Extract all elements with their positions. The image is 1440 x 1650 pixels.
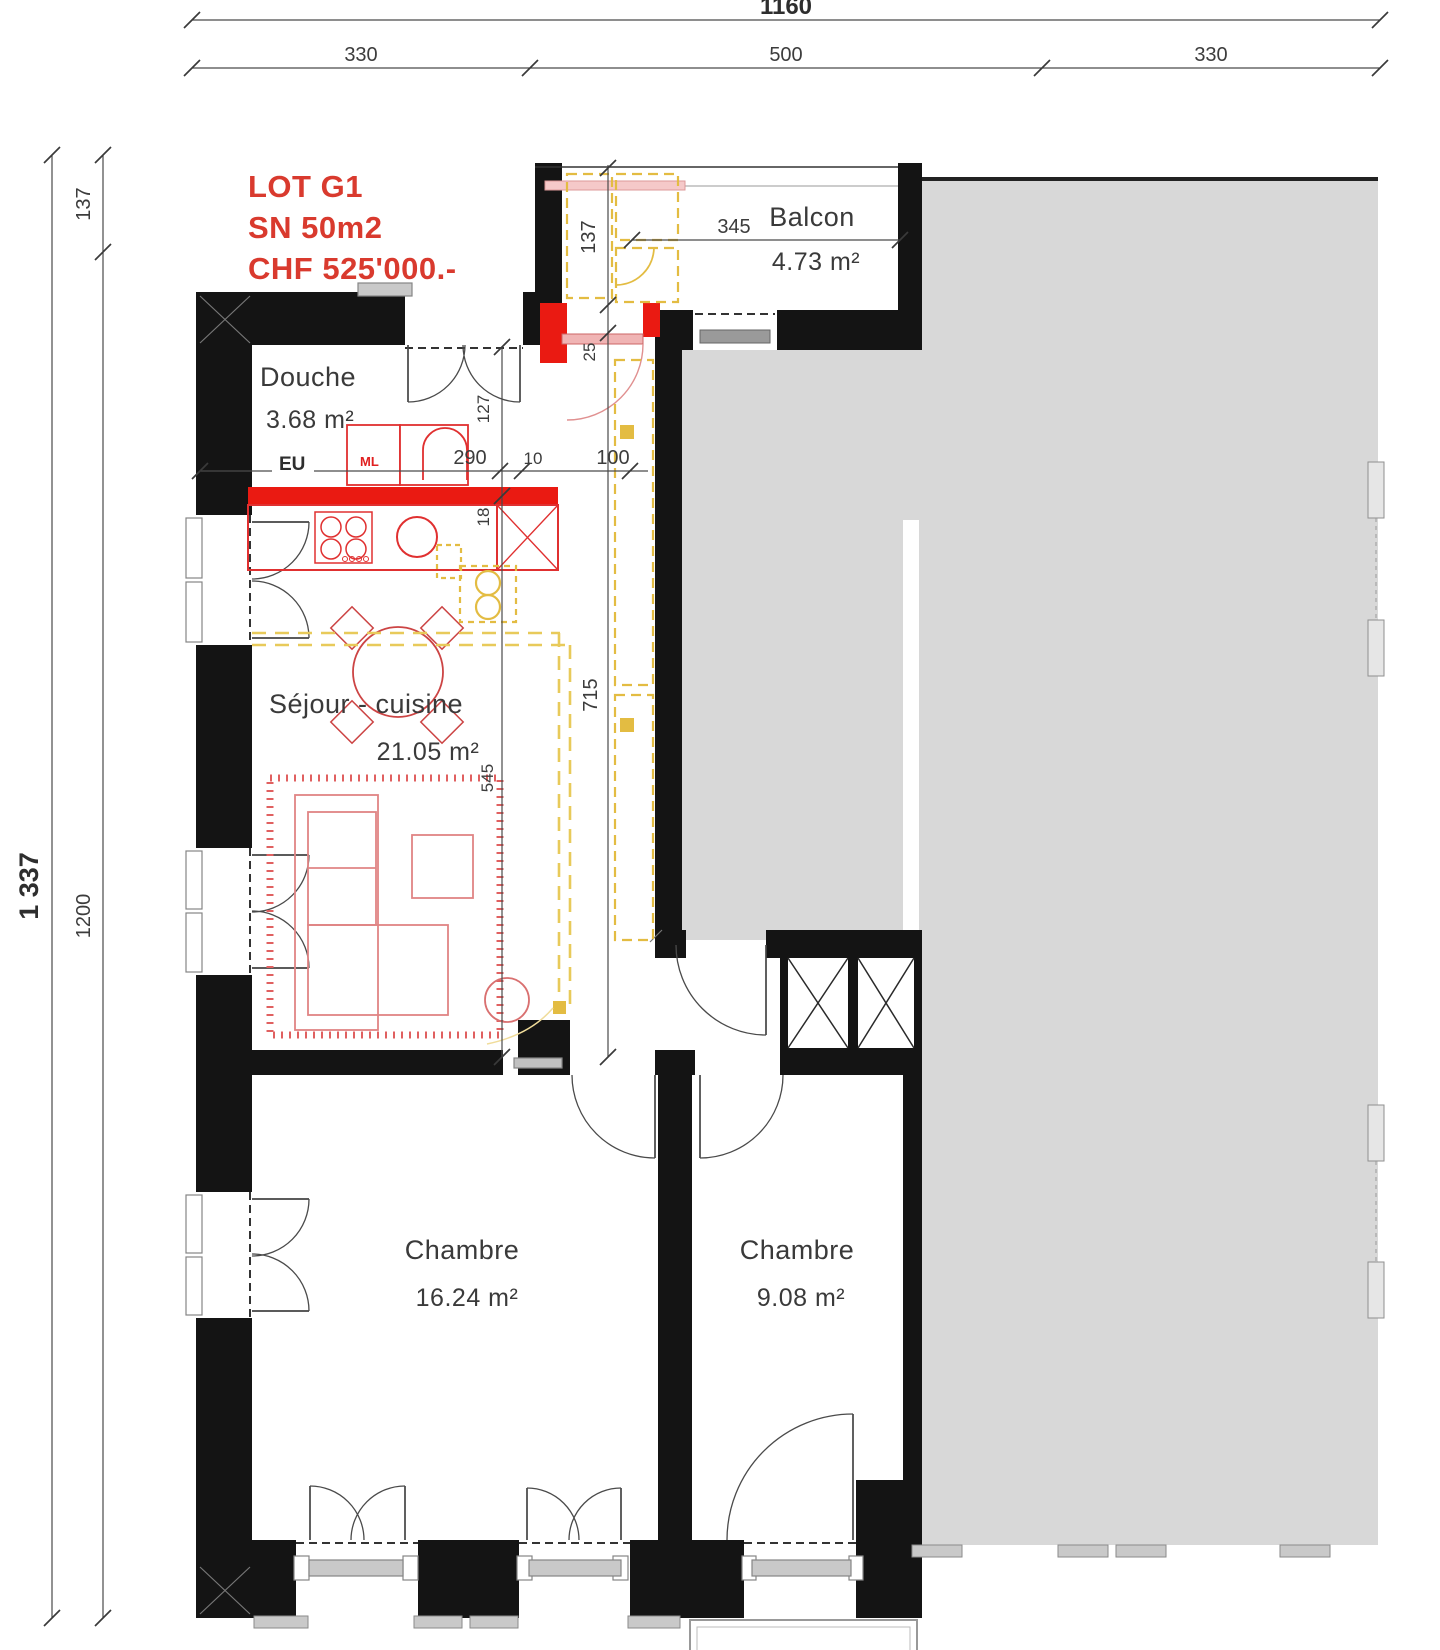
lot-name: LOT G1 — [248, 169, 363, 204]
terrace — [690, 1620, 917, 1650]
label-eu: EU — [279, 454, 305, 475]
room-label-living: Séjour - cuisine — [269, 689, 463, 719]
room-label-shower: Douche — [260, 362, 356, 392]
rug — [270, 778, 500, 1035]
entry-door — [562, 334, 643, 420]
dim-total-width: 1160 — [760, 0, 812, 20]
dim-hall-width: 100 — [596, 447, 629, 469]
room-label-bedroom1: Chambre — [405, 1235, 520, 1265]
dim-seg-right: 330 — [1194, 44, 1227, 66]
room-label-bedroom2: Chambre — [740, 1235, 855, 1265]
dim-entry-depth: 137 — [578, 220, 600, 253]
room-area-bedroom1: 16.24 m² — [416, 1284, 519, 1312]
dim-height-upper: 137 — [73, 187, 95, 220]
neighbor-window — [693, 303, 777, 350]
dim-offset-18: 18 — [474, 508, 493, 527]
room-area-balcony: 4.73 m² — [772, 248, 860, 276]
dim-height-lower: 1200 — [73, 894, 95, 939]
lot-price: CHF 525'000.- — [248, 251, 457, 286]
dining-table — [331, 607, 463, 743]
kitchen-counter — [248, 505, 497, 570]
floor-plan-svg: LOT G1 SN 50m2 CHF 525'000.- Balcon 4.73… — [0, 0, 1440, 1650]
dim-kitchen-width: 290 — [453, 447, 486, 469]
label-ml: ML — [360, 454, 379, 469]
sofa — [295, 795, 529, 1030]
dim-wall-25: 25 — [580, 343, 599, 362]
dim-hall-length: 715 — [580, 678, 602, 711]
room-area-bedroom2: 9.08 m² — [757, 1284, 845, 1312]
dim-total-height: 1 337 — [14, 852, 44, 920]
room-area-shower: 3.68 m² — [266, 406, 354, 434]
dim-balcony-width: 345 — [717, 216, 750, 238]
dim-seg-mid: 500 — [769, 44, 802, 66]
balcony-railing — [535, 167, 898, 190]
floor-plan-page: LOT G1 SN 50m2 CHF 525'000.- Balcon 4.73… — [0, 0, 1440, 1650]
room-area-living: 21.05 m² — [377, 738, 480, 766]
lot-surface: SN 50m2 — [248, 210, 382, 245]
dim-niche-depth: 127 — [474, 395, 493, 423]
neighbor-area — [677, 177, 1378, 1545]
dim-seg-left: 330 — [344, 44, 377, 66]
dim-living-length: 545 — [478, 764, 497, 792]
room-label-balcony: Balcon — [769, 202, 855, 232]
dim-wall-10: 10 — [524, 449, 543, 468]
